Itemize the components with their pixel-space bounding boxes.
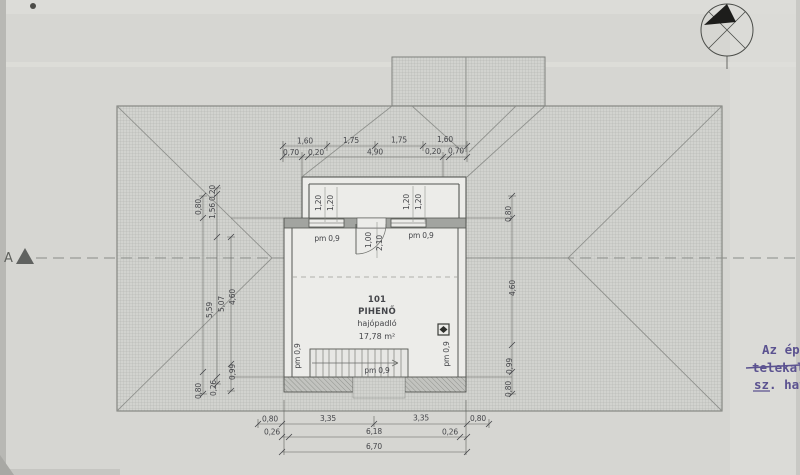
- parapet-label-window-left: pm 0,9: [314, 234, 340, 243]
- dim-label: 4,90: [367, 148, 383, 157]
- dim-label: 3,35: [320, 414, 336, 423]
- dim-label: 0,80: [470, 414, 486, 423]
- dim-label: 0,20: [308, 148, 324, 157]
- door-height-label: 2,10: [375, 235, 384, 251]
- parapet-label-stairs: pm 0,9: [364, 366, 390, 375]
- staircase: [310, 349, 408, 377]
- dim-label: 0,70: [283, 148, 299, 157]
- dim-label: 0,99: [505, 358, 514, 374]
- room-bottom-wall-left: [284, 377, 353, 392]
- roof-dormer-bump: [392, 57, 545, 109]
- scanned-floor-plan-page: A: [0, 0, 800, 475]
- scan-edge-left: [0, 0, 6, 475]
- dim-label: 0,80: [504, 206, 513, 222]
- dim-label: 6,18: [366, 427, 382, 436]
- window-dim-label: 1,20: [402, 194, 411, 210]
- floor-plan-drawing: A: [0, 0, 800, 475]
- dim-label: 0,26: [209, 380, 218, 396]
- attic-room: [284, 177, 466, 398]
- room-bottom-wall-right: [405, 377, 466, 392]
- dim-label: 1,60: [297, 137, 313, 146]
- dim-label: 0,80: [262, 415, 278, 424]
- dim-label: 0,20: [425, 147, 441, 156]
- dim-label: 0,20: [208, 185, 217, 201]
- parapet-label-window-right: pm 0,9: [408, 231, 434, 240]
- dim-label: 0,26: [442, 428, 458, 437]
- parapet-label-wall-right: pm 0,9: [442, 341, 451, 367]
- room-area: 17,78 m²: [359, 332, 395, 341]
- dim-label: 0,80: [194, 383, 203, 399]
- dim-label: 5,07: [217, 296, 226, 312]
- dim-label: 0,80: [194, 199, 203, 215]
- window-left: [309, 219, 344, 227]
- scan-speck: [30, 3, 36, 9]
- dim-label: 4,60: [508, 280, 517, 296]
- dim-label: 1,75: [391, 136, 407, 145]
- room-name: PIHENŐ: [358, 306, 396, 317]
- window-dim-label: 1,20: [414, 194, 423, 210]
- door-width-label: 1,00: [364, 232, 373, 248]
- stairwell-void: [353, 377, 405, 398]
- flue-symbol: [438, 324, 449, 335]
- dim-label: 1,60: [437, 135, 453, 144]
- window-dim-label: 1,20: [314, 195, 323, 211]
- dim-label: 1,75: [343, 136, 359, 145]
- room-floor-type: hajópadló: [357, 318, 396, 328]
- dim-label: 0,99: [228, 364, 237, 380]
- window-dim-label: 1,20: [326, 195, 335, 211]
- note-line-1: Az ép: [762, 342, 800, 357]
- dim-label: 0,26: [264, 428, 280, 437]
- dim-label: 0,70: [448, 147, 464, 156]
- dim-label: 0,80: [504, 381, 513, 397]
- room-number: 101: [368, 295, 386, 305]
- scan-edge-right: [796, 0, 800, 475]
- dim-label: 4,60: [228, 289, 237, 305]
- scan-edge-bottom: [0, 469, 120, 475]
- note-line-3: sz. hat: [754, 377, 800, 392]
- dim-label: 3,35: [413, 414, 429, 423]
- dim-label: 6,70: [366, 442, 382, 451]
- parapet-label-wall-left: pm 0,9: [293, 343, 302, 369]
- dim-label: 5,59: [205, 302, 214, 318]
- window-right: [391, 219, 426, 227]
- dim-label: 1,56: [208, 203, 217, 219]
- section-marker-label: A: [4, 251, 13, 266]
